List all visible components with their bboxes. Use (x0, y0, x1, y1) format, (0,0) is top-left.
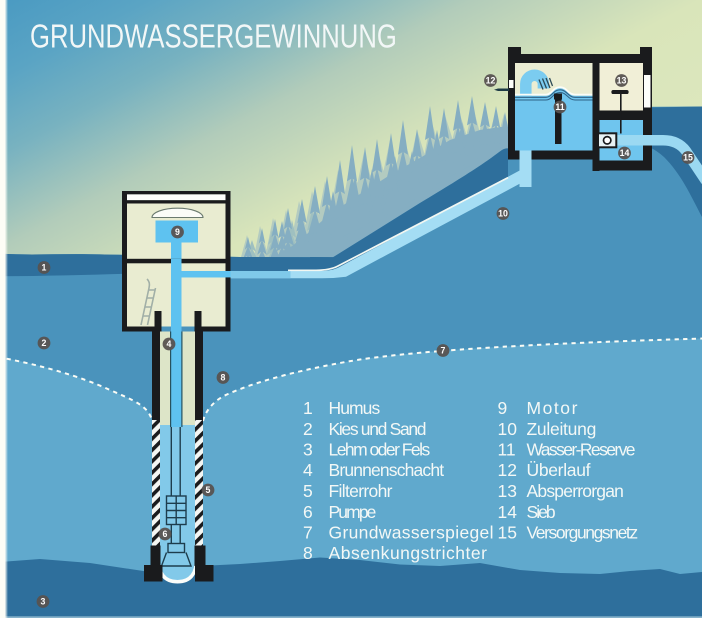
svg-text:Lehm oder Fels: Lehm oder Fels (329, 440, 431, 460)
svg-text:6: 6 (303, 502, 313, 522)
svg-text:GRUNDWASSERGEWINNUNG: GRUNDWASSERGEWINNUNG (30, 18, 397, 55)
svg-text:Grundwasserspiegel: Grundwasserspiegel (329, 523, 494, 543)
svg-text:12: 12 (486, 76, 496, 86)
svg-text:Brunnenschacht: Brunnenschacht (329, 460, 445, 480)
svg-text:Sieb: Sieb (527, 502, 556, 522)
svg-text:6: 6 (163, 529, 168, 539)
svg-text:Versorgungsnetz: Versorgungsnetz (527, 523, 639, 543)
svg-text:13: 13 (617, 76, 627, 86)
svg-text:Motor: Motor (527, 398, 578, 418)
svg-text:Überlauf: Überlauf (527, 460, 591, 480)
svg-text:5: 5 (303, 481, 313, 501)
svg-text:14: 14 (620, 148, 630, 158)
svg-text:Kies und Sand: Kies und Sand (329, 419, 427, 439)
svg-text:2: 2 (42, 338, 47, 348)
svg-text:4: 4 (303, 460, 313, 480)
svg-text:13: 13 (498, 481, 517, 501)
svg-text:9: 9 (498, 398, 508, 418)
svg-text:Wasser-Reserve: Wasser-Reserve (527, 440, 636, 460)
svg-text:7: 7 (441, 346, 446, 356)
svg-text:14: 14 (498, 502, 518, 522)
svg-text:9: 9 (175, 227, 180, 237)
svg-text:7: 7 (303, 523, 313, 543)
svg-text:10: 10 (498, 209, 508, 219)
svg-text:Zuleitung: Zuleitung (527, 419, 597, 439)
svg-text:5: 5 (206, 485, 211, 495)
svg-text:Absperrorgan: Absperrorgan (527, 481, 624, 501)
svg-text:Humus: Humus (329, 398, 381, 418)
svg-text:8: 8 (221, 373, 226, 383)
svg-text:Absenkungstrichter: Absenkungstrichter (329, 543, 488, 563)
svg-text:10: 10 (498, 419, 518, 439)
svg-text:15: 15 (498, 523, 517, 543)
svg-text:11: 11 (498, 440, 516, 460)
svg-text:15: 15 (683, 153, 693, 163)
svg-text:11: 11 (555, 102, 564, 112)
svg-text:1: 1 (42, 263, 47, 273)
svg-text:12: 12 (498, 460, 517, 480)
svg-text:4: 4 (167, 339, 172, 349)
svg-text:3: 3 (41, 597, 46, 607)
svg-text:Filterrohr: Filterrohr (329, 481, 393, 501)
svg-text:8: 8 (303, 543, 313, 563)
svg-text:2: 2 (303, 419, 313, 439)
svg-text:3: 3 (303, 440, 313, 460)
svg-text:Pumpe: Pumpe (329, 502, 377, 522)
svg-text:1: 1 (303, 398, 313, 418)
